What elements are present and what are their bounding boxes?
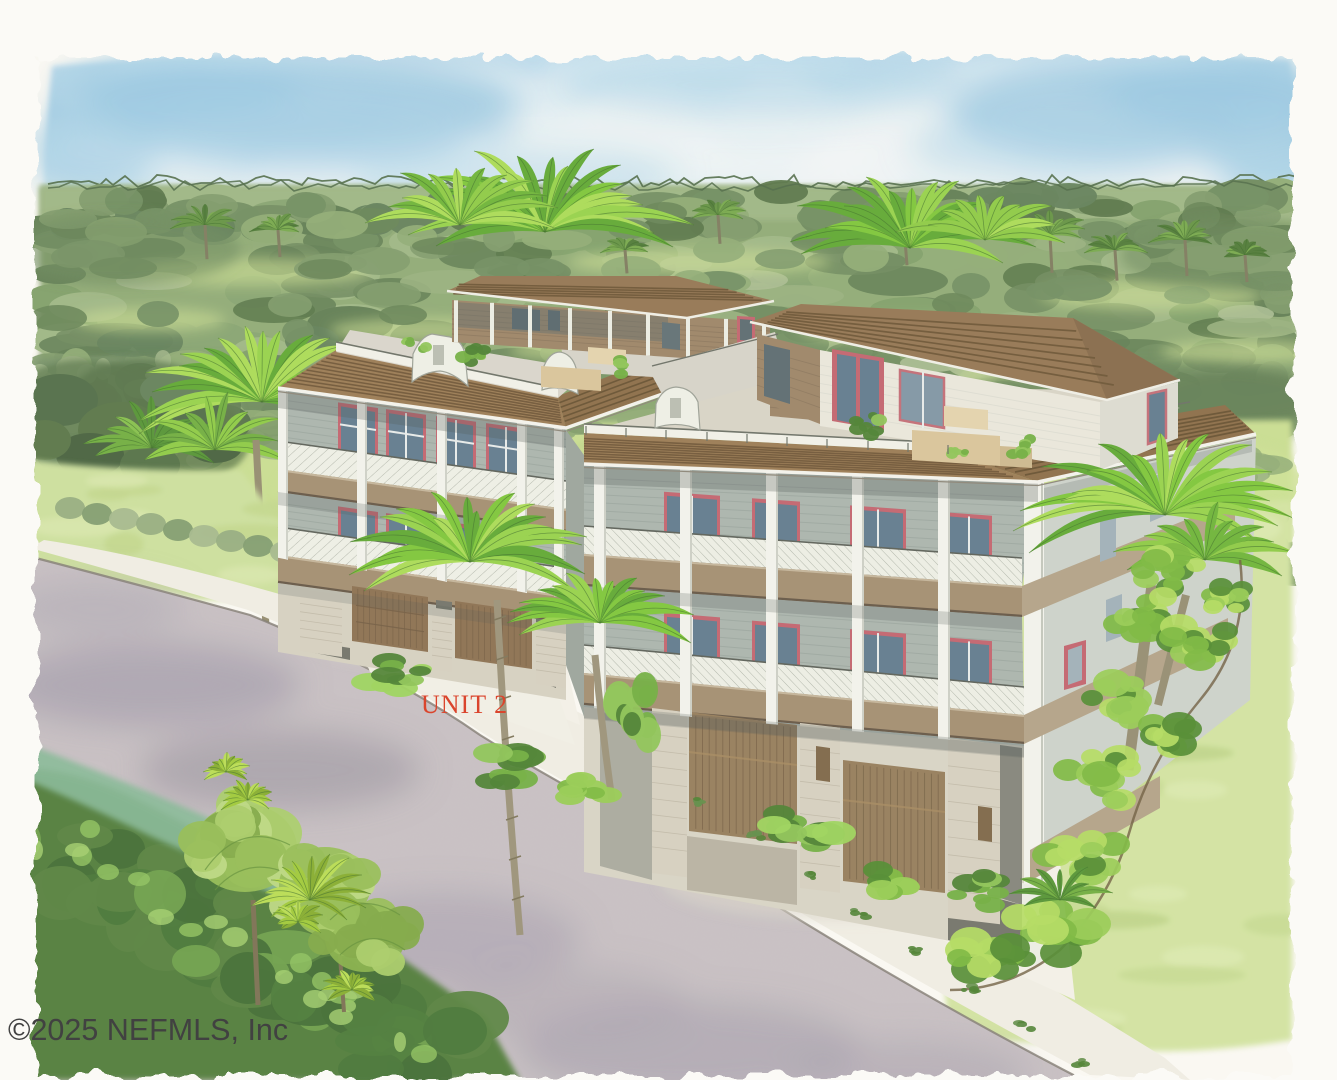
- svg-text:©2025 NEFMLS, Inc: ©2025 NEFMLS, Inc: [8, 1013, 288, 1047]
